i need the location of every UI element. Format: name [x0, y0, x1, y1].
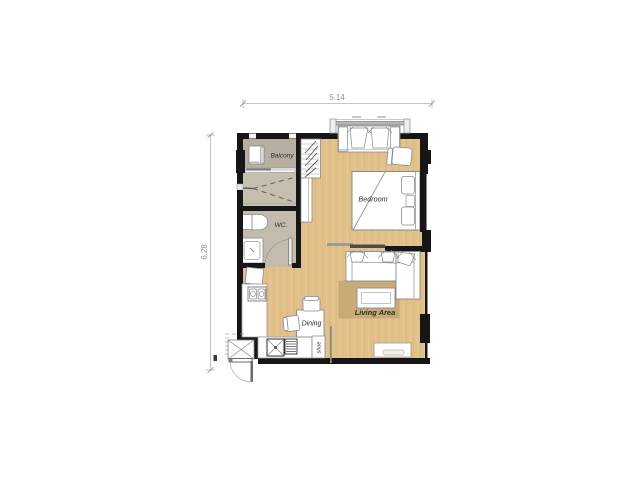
svg-text:Bedroom: Bedroom [358, 195, 387, 204]
svg-text:WC.: WC. [275, 222, 288, 229]
svg-text:Balcony: Balcony [270, 153, 294, 160]
svg-text:6.28: 6.28 [200, 244, 209, 260]
svg-text:5.14: 5.14 [329, 93, 345, 102]
svg-text:Living Area: Living Area [355, 308, 396, 317]
svg-text:shoe: shoe [317, 342, 323, 354]
svg-text:Dining: Dining [302, 321, 322, 328]
